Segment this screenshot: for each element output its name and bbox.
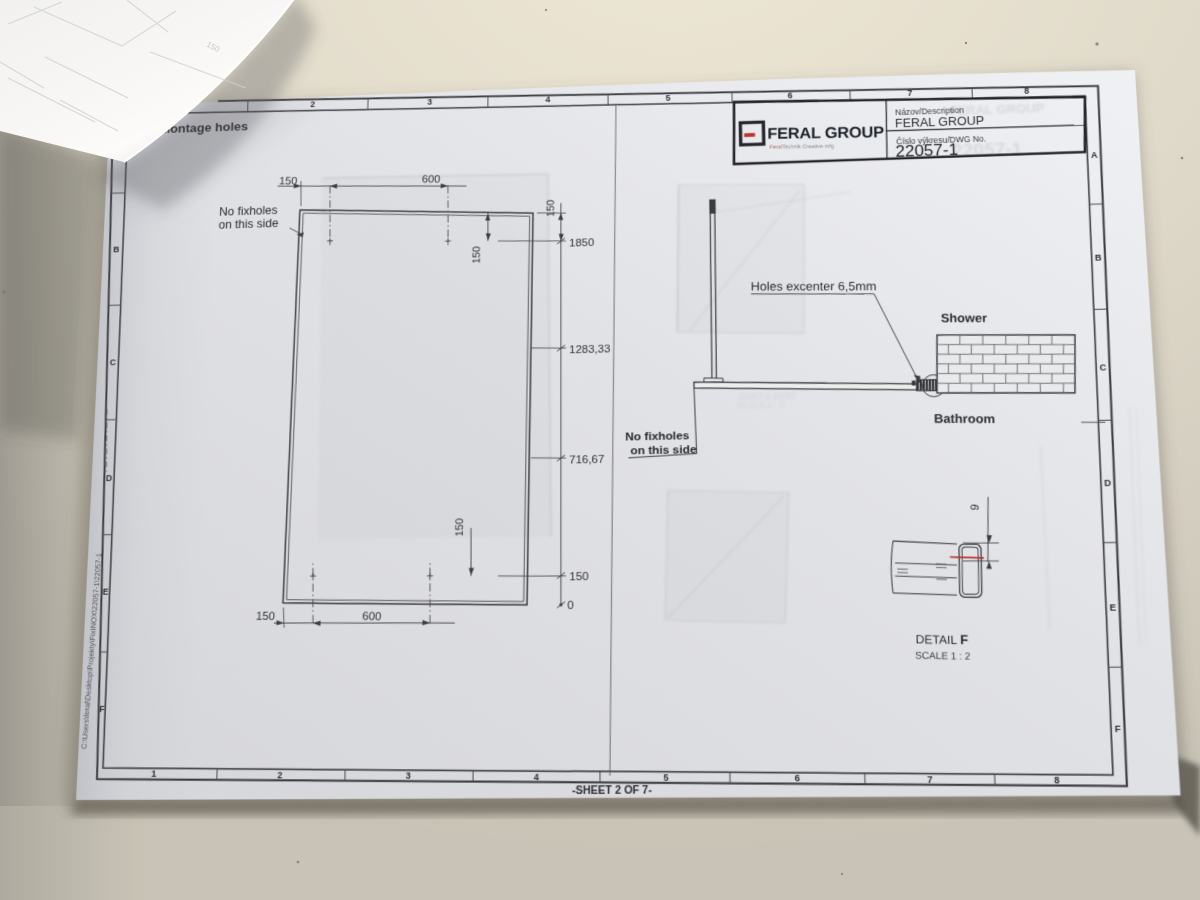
svg-text:150: 150 — [569, 571, 589, 584]
svg-text:150: 150 — [279, 176, 298, 187]
svg-text:No fixholeson this side: No fixholeson this side — [218, 204, 279, 231]
svg-text:Holes excenter 6,5mm: Holes excenter 6,5mm — [751, 281, 877, 294]
svg-text:150: 150 — [545, 199, 557, 217]
svg-text:4: 4 — [534, 772, 540, 783]
svg-text:7: 7 — [907, 89, 913, 98]
svg-text:4: 4 — [545, 95, 550, 104]
svg-text:600: 600 — [362, 611, 382, 624]
svg-text:B: B — [1095, 253, 1102, 263]
svg-text:E: E — [1109, 603, 1117, 614]
svg-text:D: D — [106, 473, 113, 483]
svg-text:6: 6 — [787, 91, 793, 100]
svg-text:1: 1 — [151, 769, 157, 779]
svg-text:SCALE 1 : 2: SCALE 1 : 2 — [915, 649, 971, 662]
svg-text:5: 5 — [663, 773, 669, 784]
svg-text:Shower: Shower — [941, 312, 988, 325]
svg-text:1283,33: 1283,33 — [569, 344, 610, 357]
svg-text:Bathroom: Bathroom — [934, 413, 995, 427]
svg-text:F: F — [1115, 724, 1122, 735]
svg-text:D: D — [1104, 478, 1112, 488]
svg-text:150: 150 — [256, 611, 276, 624]
svg-text:150: 150 — [454, 518, 466, 537]
svg-text:8: 8 — [1054, 775, 1061, 786]
svg-text:FERAL GROUP: FERAL GROUP — [767, 124, 884, 143]
svg-text:2: 2 — [277, 770, 283, 780]
svg-text:22057-1: 22057-1 — [895, 142, 958, 162]
svg-text:A: A — [1091, 150, 1098, 160]
svg-text:1850: 1850 — [569, 237, 594, 249]
svg-text:C: C — [1099, 363, 1106, 373]
svg-text:0: 0 — [567, 600, 574, 613]
svg-text:6: 6 — [795, 773, 801, 784]
svg-text:600: 600 — [422, 174, 441, 185]
svg-text:SCALE 1 : 5: SCALE 1 : 5 — [737, 400, 785, 411]
svg-text:E: E — [102, 587, 109, 597]
svg-text:FeralTechnik Creative mfg: FeralTechnik Creative mfg — [770, 144, 835, 151]
svg-text:150: 150 — [471, 246, 483, 264]
svg-text:B: B — [113, 245, 120, 254]
svg-text:-SHEET 2 OF 7-: -SHEET 2 OF 7- — [572, 784, 652, 797]
svg-text:3: 3 — [427, 98, 432, 107]
svg-text:3: 3 — [406, 771, 412, 781]
svg-text:5: 5 — [666, 93, 671, 102]
svg-text:C: C — [109, 358, 116, 368]
svg-text:7: 7 — [927, 774, 933, 785]
svg-text:2: 2 — [310, 100, 315, 109]
svg-text:DETAIL F: DETAIL F — [916, 633, 969, 648]
svg-text:F: F — [99, 704, 105, 714]
svg-text:716,67: 716,67 — [569, 454, 605, 467]
